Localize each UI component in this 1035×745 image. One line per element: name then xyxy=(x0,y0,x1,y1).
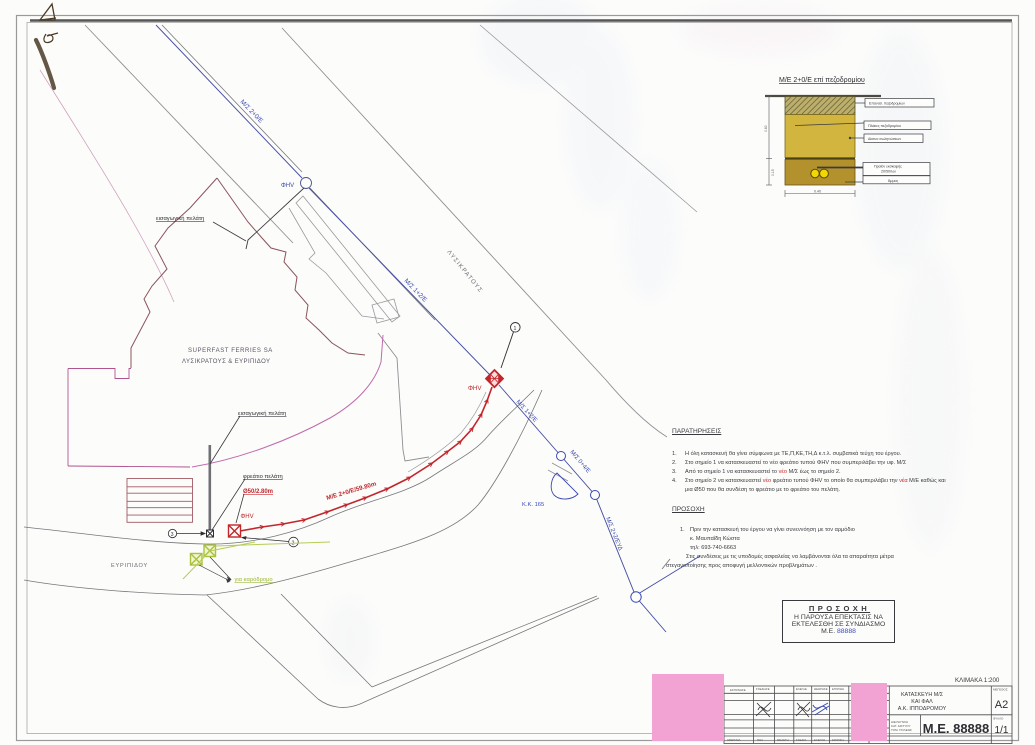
svg-text:ΦΥΛΛΟ: ΦΥΛΛΟ xyxy=(993,717,1004,721)
svg-text:ΕΓΚΡΙΣΗ: ΕΓΚΡΙΣΗ xyxy=(832,738,844,742)
svg-text:ΜΕΛΕΤΗ: ΜΕΛΕΤΗ xyxy=(777,738,789,742)
svg-text:ΚΑΤΑΣΚΕΥΗ Μ/Σ: ΚΑΤΑΣΚΕΥΗ Μ/Σ xyxy=(901,692,944,698)
svg-text:A2: A2 xyxy=(995,699,1008,711)
svg-text:ΘΕΩΡΗΣΕ: ΘΕΩΡΗΣΕ xyxy=(814,687,828,691)
svg-text:ΤΟΜ. ΠΟΛΕΩΣ: ΤΟΜ. ΠΟΛΕΩΣ xyxy=(891,728,912,732)
svg-text:Α.Κ. ΙΠΠΟΔΡΟΜΟΥ: Α.Κ. ΙΠΠΟΔΡΟΜΟΥ xyxy=(898,706,947,712)
svg-text:ΣΧΕΔΙΑΣΕ: ΣΧΕΔΙΑΣΕ xyxy=(756,687,770,691)
svg-text:ΜΕΓΕΘΟΣ: ΜΕΓΕΘΟΣ xyxy=(993,688,1008,692)
svg-text:ΕΛΕΓΞΕ: ΕΛΕΓΞΕ xyxy=(796,687,807,691)
svg-text:ΕΚΠΟΝΗΣΕ: ΕΚΠΟΝΗΣΕ xyxy=(730,688,746,692)
svg-text:ΠΩΛ: ΠΩΛ xyxy=(757,738,763,742)
svg-text:ΕΓΚΡΙΘΗ: ΕΓΚΡΙΘΗ xyxy=(832,687,844,691)
svg-text:Μ.Ε. 88888: Μ.Ε. 88888 xyxy=(923,721,990,736)
svg-text:ΚΑΙ ΦΑΛ: ΚΑΙ ΦΑΛ xyxy=(911,699,933,705)
svg-text:ΕΛΕΓΧΟ: ΕΛΕΓΧΟ xyxy=(814,738,826,742)
svg-text:ΗΜΕΡ/ΝΙΑ: ΗΜΕΡ/ΝΙΑ xyxy=(727,738,741,742)
svg-text:1/1: 1/1 xyxy=(995,725,1009,736)
svg-text:ΣΧΕΔΙΟ: ΣΧΕΔΙΟ xyxy=(796,738,807,742)
